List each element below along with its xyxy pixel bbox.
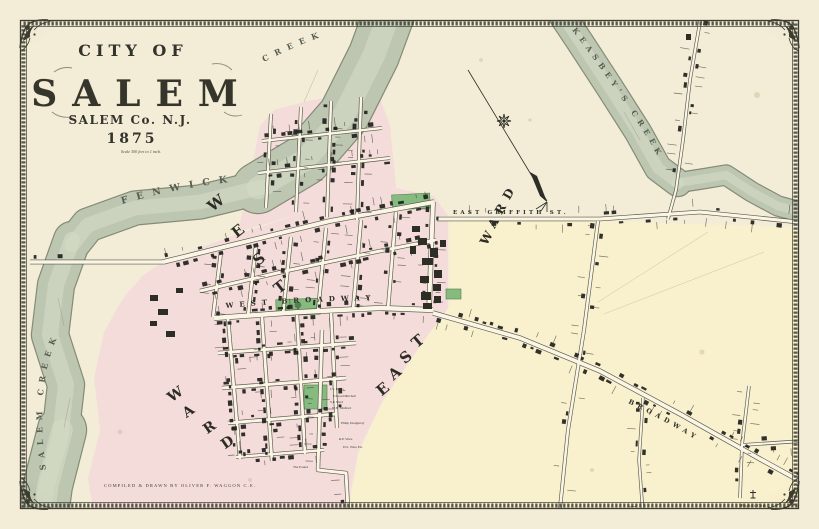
map-canvas: WESTWARDEASTWARD J.S. DavisEdward Mitche… <box>0 0 819 529</box>
salem-1875-map: WESTWARDEASTWARD J.S. DavisEdward Mitche… <box>0 0 819 529</box>
vignette-overlay <box>0 0 819 529</box>
map-content: WESTWARDEASTWARD J.S. DavisEdward Mitche… <box>0 0 819 529</box>
